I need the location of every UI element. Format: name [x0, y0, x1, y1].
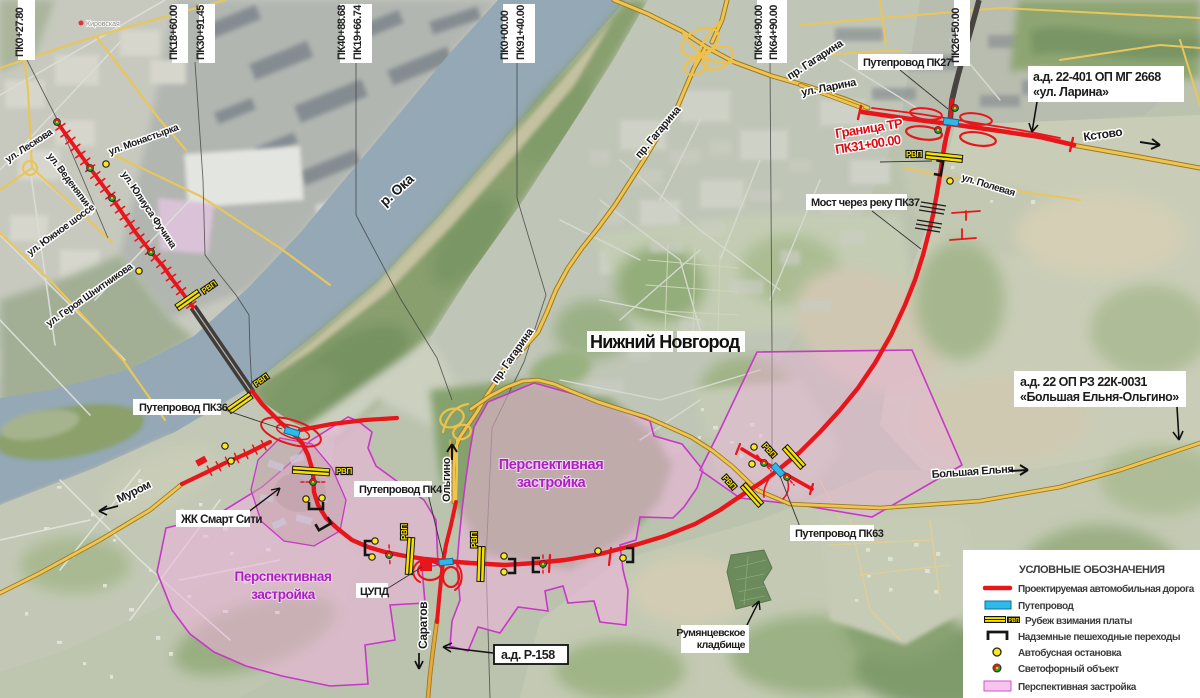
svg-text:РВП: РВП	[1009, 618, 1020, 624]
svg-text:ПК0+27.80: ПК0+27.80	[14, 7, 26, 57]
svg-text:ПК30+91.45: ПК30+91.45	[195, 5, 207, 60]
svg-text:ПК19+66.74: ПК19+66.74	[352, 4, 364, 60]
svg-text:застройка: застройка	[251, 587, 316, 602]
svg-text:Нижний Новгород: Нижний Новгород	[590, 332, 741, 352]
svg-text:Светофорный объект: Светофорный объект	[1018, 663, 1119, 675]
svg-text:Путепровод ПК63: Путепровод ПК63	[795, 528, 884, 540]
svg-text:Путепровод ПК4: Путепровод ПК4	[359, 484, 443, 496]
svg-text:Перспективная застройка: Перспективная застройка	[1018, 682, 1137, 693]
svg-text:а.д. Р-158: а.д. Р-158	[501, 648, 555, 662]
svg-text:ПК40+88.68: ПК40+88.68	[336, 5, 348, 60]
svg-text:ПК64+90.00: ПК64+90.00	[753, 5, 765, 60]
svg-text:Румянцевское: Румянцевское	[676, 627, 745, 639]
svg-text:ПК91+40.00: ПК91+40.00	[515, 5, 527, 60]
svg-text:ЖК Смарт Сити: ЖК Смарт Сити	[180, 514, 262, 526]
svg-text:Автобусная остановка: Автобусная остановка	[1018, 647, 1122, 659]
svg-text:Ольгино: Ольгино	[441, 457, 453, 502]
svg-text:РВП: РВП	[400, 523, 409, 540]
svg-text:Мост через реку ПК37: Мост через реку ПК37	[811, 197, 920, 209]
svg-text:Путепровод: Путепровод	[1018, 601, 1075, 612]
svg-text:застройка: застройка	[517, 475, 587, 491]
svg-text:Кировская: Кировская	[86, 21, 120, 28]
svg-text:кладбище: кладбище	[697, 639, 746, 651]
svg-text:Перспективная: Перспективная	[235, 569, 332, 584]
svg-text:ПК0+00.00: ПК0+00.00	[499, 10, 511, 60]
svg-text:ПК26+50.00: ПК26+50.00	[950, 8, 962, 63]
svg-text:«Большая Ельня-Ольгино»: «Большая Ельня-Ольгино»	[1020, 390, 1179, 404]
svg-text:Рубеж взимания платы: Рубеж взимания платы	[1025, 615, 1132, 627]
svg-text:РВП: РВП	[906, 150, 923, 159]
svg-text:Проектируемая автомобильная до: Проектируемая автомобильная дорога	[1018, 583, 1195, 595]
svg-text:ЦУПД: ЦУПД	[360, 586, 389, 598]
svg-text:а.д. 22-401 ОП МГ 2668: а.д. 22-401 ОП МГ 2668	[1033, 70, 1161, 84]
svg-text:ПК18+60.00: ПК18+60.00	[168, 5, 180, 60]
svg-text:Путепровод ПК36: Путепровод ПК36	[139, 402, 228, 414]
svg-text:а.д. 22 ОП РЗ 22К-0031: а.д. 22 ОП РЗ 22К-0031	[1020, 375, 1147, 389]
svg-text:УСЛОВНЫЕ ОБОЗНАЧЕНИЯ: УСЛОВНЫЕ ОБОЗНАЧЕНИЯ	[1019, 564, 1165, 576]
svg-text:«ул. Ларина»: «ул. Ларина»	[1033, 85, 1109, 99]
svg-text:Надземные пешеходные переходы: Надземные пешеходные переходы	[1018, 632, 1180, 643]
svg-text:Путепровод ПК27: Путепровод ПК27	[863, 57, 952, 69]
svg-text:ПК64+90.00: ПК64+90.00	[768, 5, 780, 60]
svg-text:РВП: РВП	[336, 467, 353, 476]
svg-text:РВП: РВП	[470, 531, 479, 548]
svg-text:Саратов: Саратов	[416, 602, 430, 649]
svg-text:Перспективная: Перспективная	[499, 457, 604, 473]
